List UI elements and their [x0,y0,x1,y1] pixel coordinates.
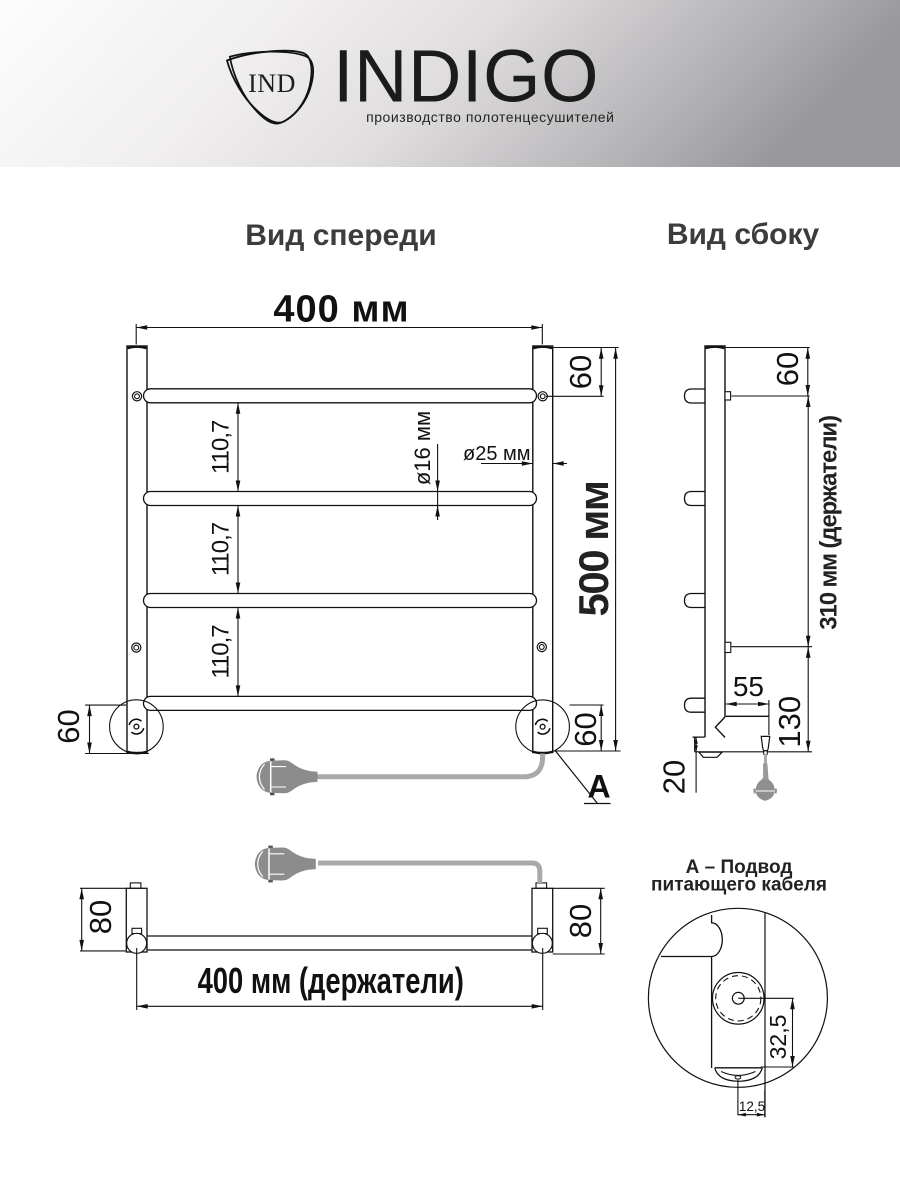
svg-text:400 мм: 400 мм [273,289,409,331]
svg-text:12,5: 12,5 [739,1099,765,1114]
svg-text:110,7: 110,7 [208,420,235,474]
svg-text:ø25 мм: ø25 мм [463,443,531,465]
svg-text:310 мм (держатели): 310 мм (держатели) [816,416,843,630]
svg-text:60: 60 [770,352,805,386]
svg-text:110,7: 110,7 [208,522,235,576]
svg-text:60: 60 [563,355,598,389]
svg-text:60: 60 [51,709,86,743]
svg-text:80: 80 [83,900,118,934]
svg-text:55: 55 [733,671,764,702]
svg-text:Вид спереди: Вид спереди [245,219,436,252]
svg-text:A: A [587,769,610,805]
svg-text:400 мм (держатели): 400 мм (держатели) [198,960,464,1001]
svg-text:IND: IND [248,69,296,98]
svg-text:130: 130 [772,696,807,748]
svg-text:INDIGO: INDIGO [333,35,599,118]
svg-text:110,7: 110,7 [208,625,235,679]
svg-text:питающего кабеля: питающего кабеля [651,875,827,896]
svg-text:500 мм: 500 мм [570,482,617,617]
svg-text:32,5: 32,5 [765,1015,791,1060]
svg-text:60: 60 [568,712,603,746]
svg-text:производство полотенцесушителе: производство полотенцесушителей [366,109,614,125]
svg-text:Вид сбоку: Вид сбоку [667,218,820,251]
svg-text:ø16 мм: ø16 мм [410,411,435,485]
svg-text:20: 20 [657,760,692,794]
svg-text:80: 80 [563,904,598,938]
